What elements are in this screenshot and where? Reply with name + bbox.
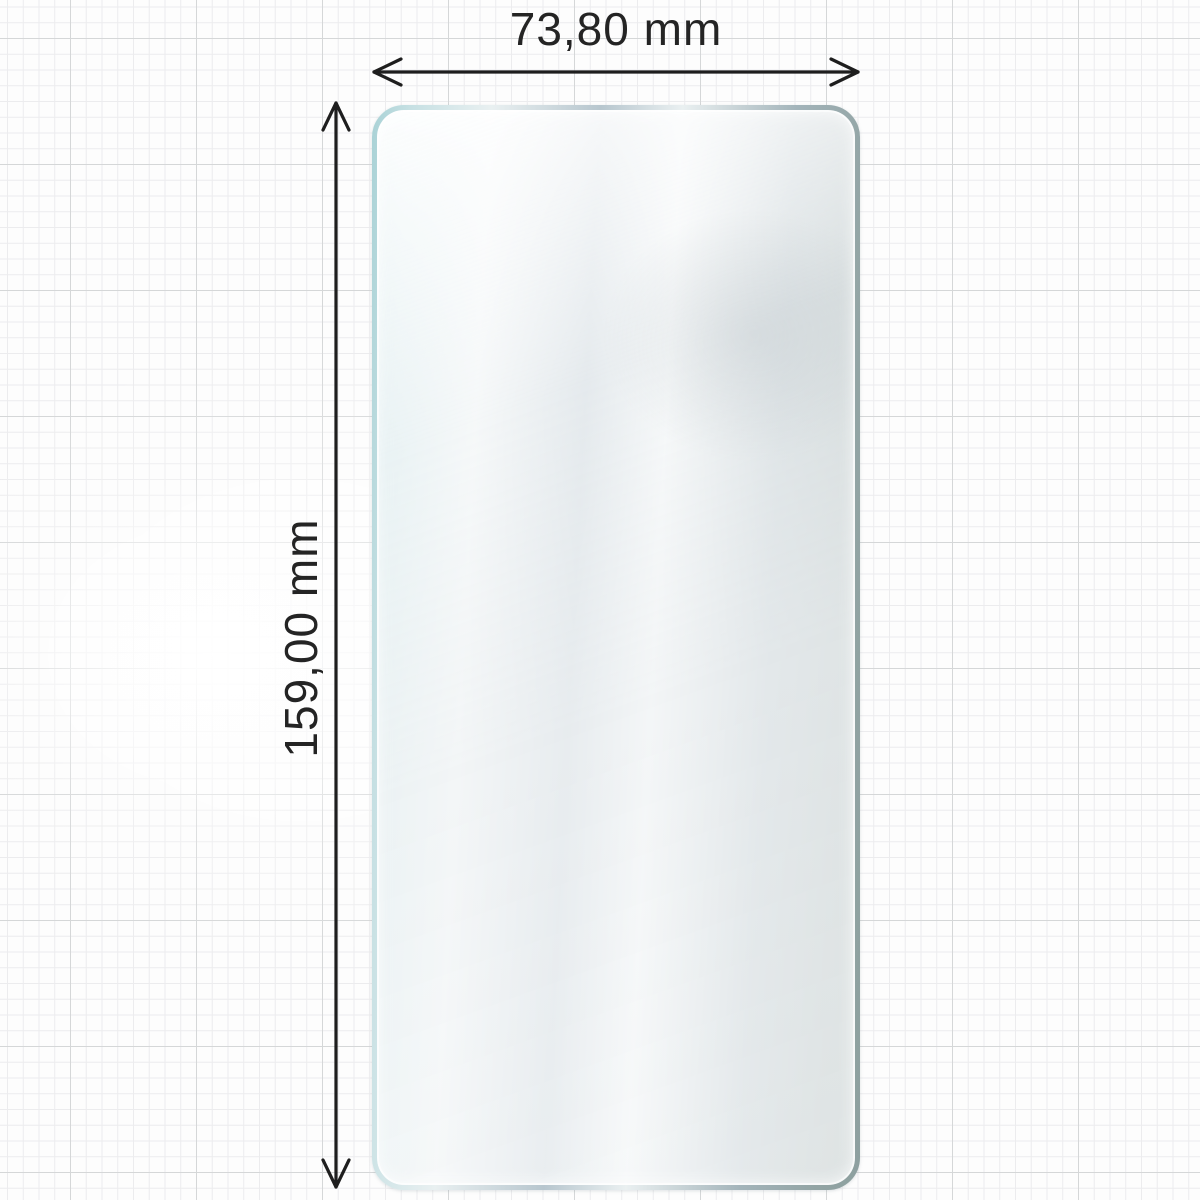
- height-dimension-arrow-icon: [318, 96, 354, 1194]
- screen-protector-surface: [377, 110, 855, 1185]
- width-dimension: 73,80 mm: [368, 0, 864, 90]
- width-dimension-label: 73,80 mm: [368, 6, 864, 52]
- width-dimension-arrow-icon: [368, 54, 864, 90]
- screen-protector: [372, 105, 860, 1190]
- product-diagram: 73,80 mm 159,00 mm: [0, 0, 1200, 1200]
